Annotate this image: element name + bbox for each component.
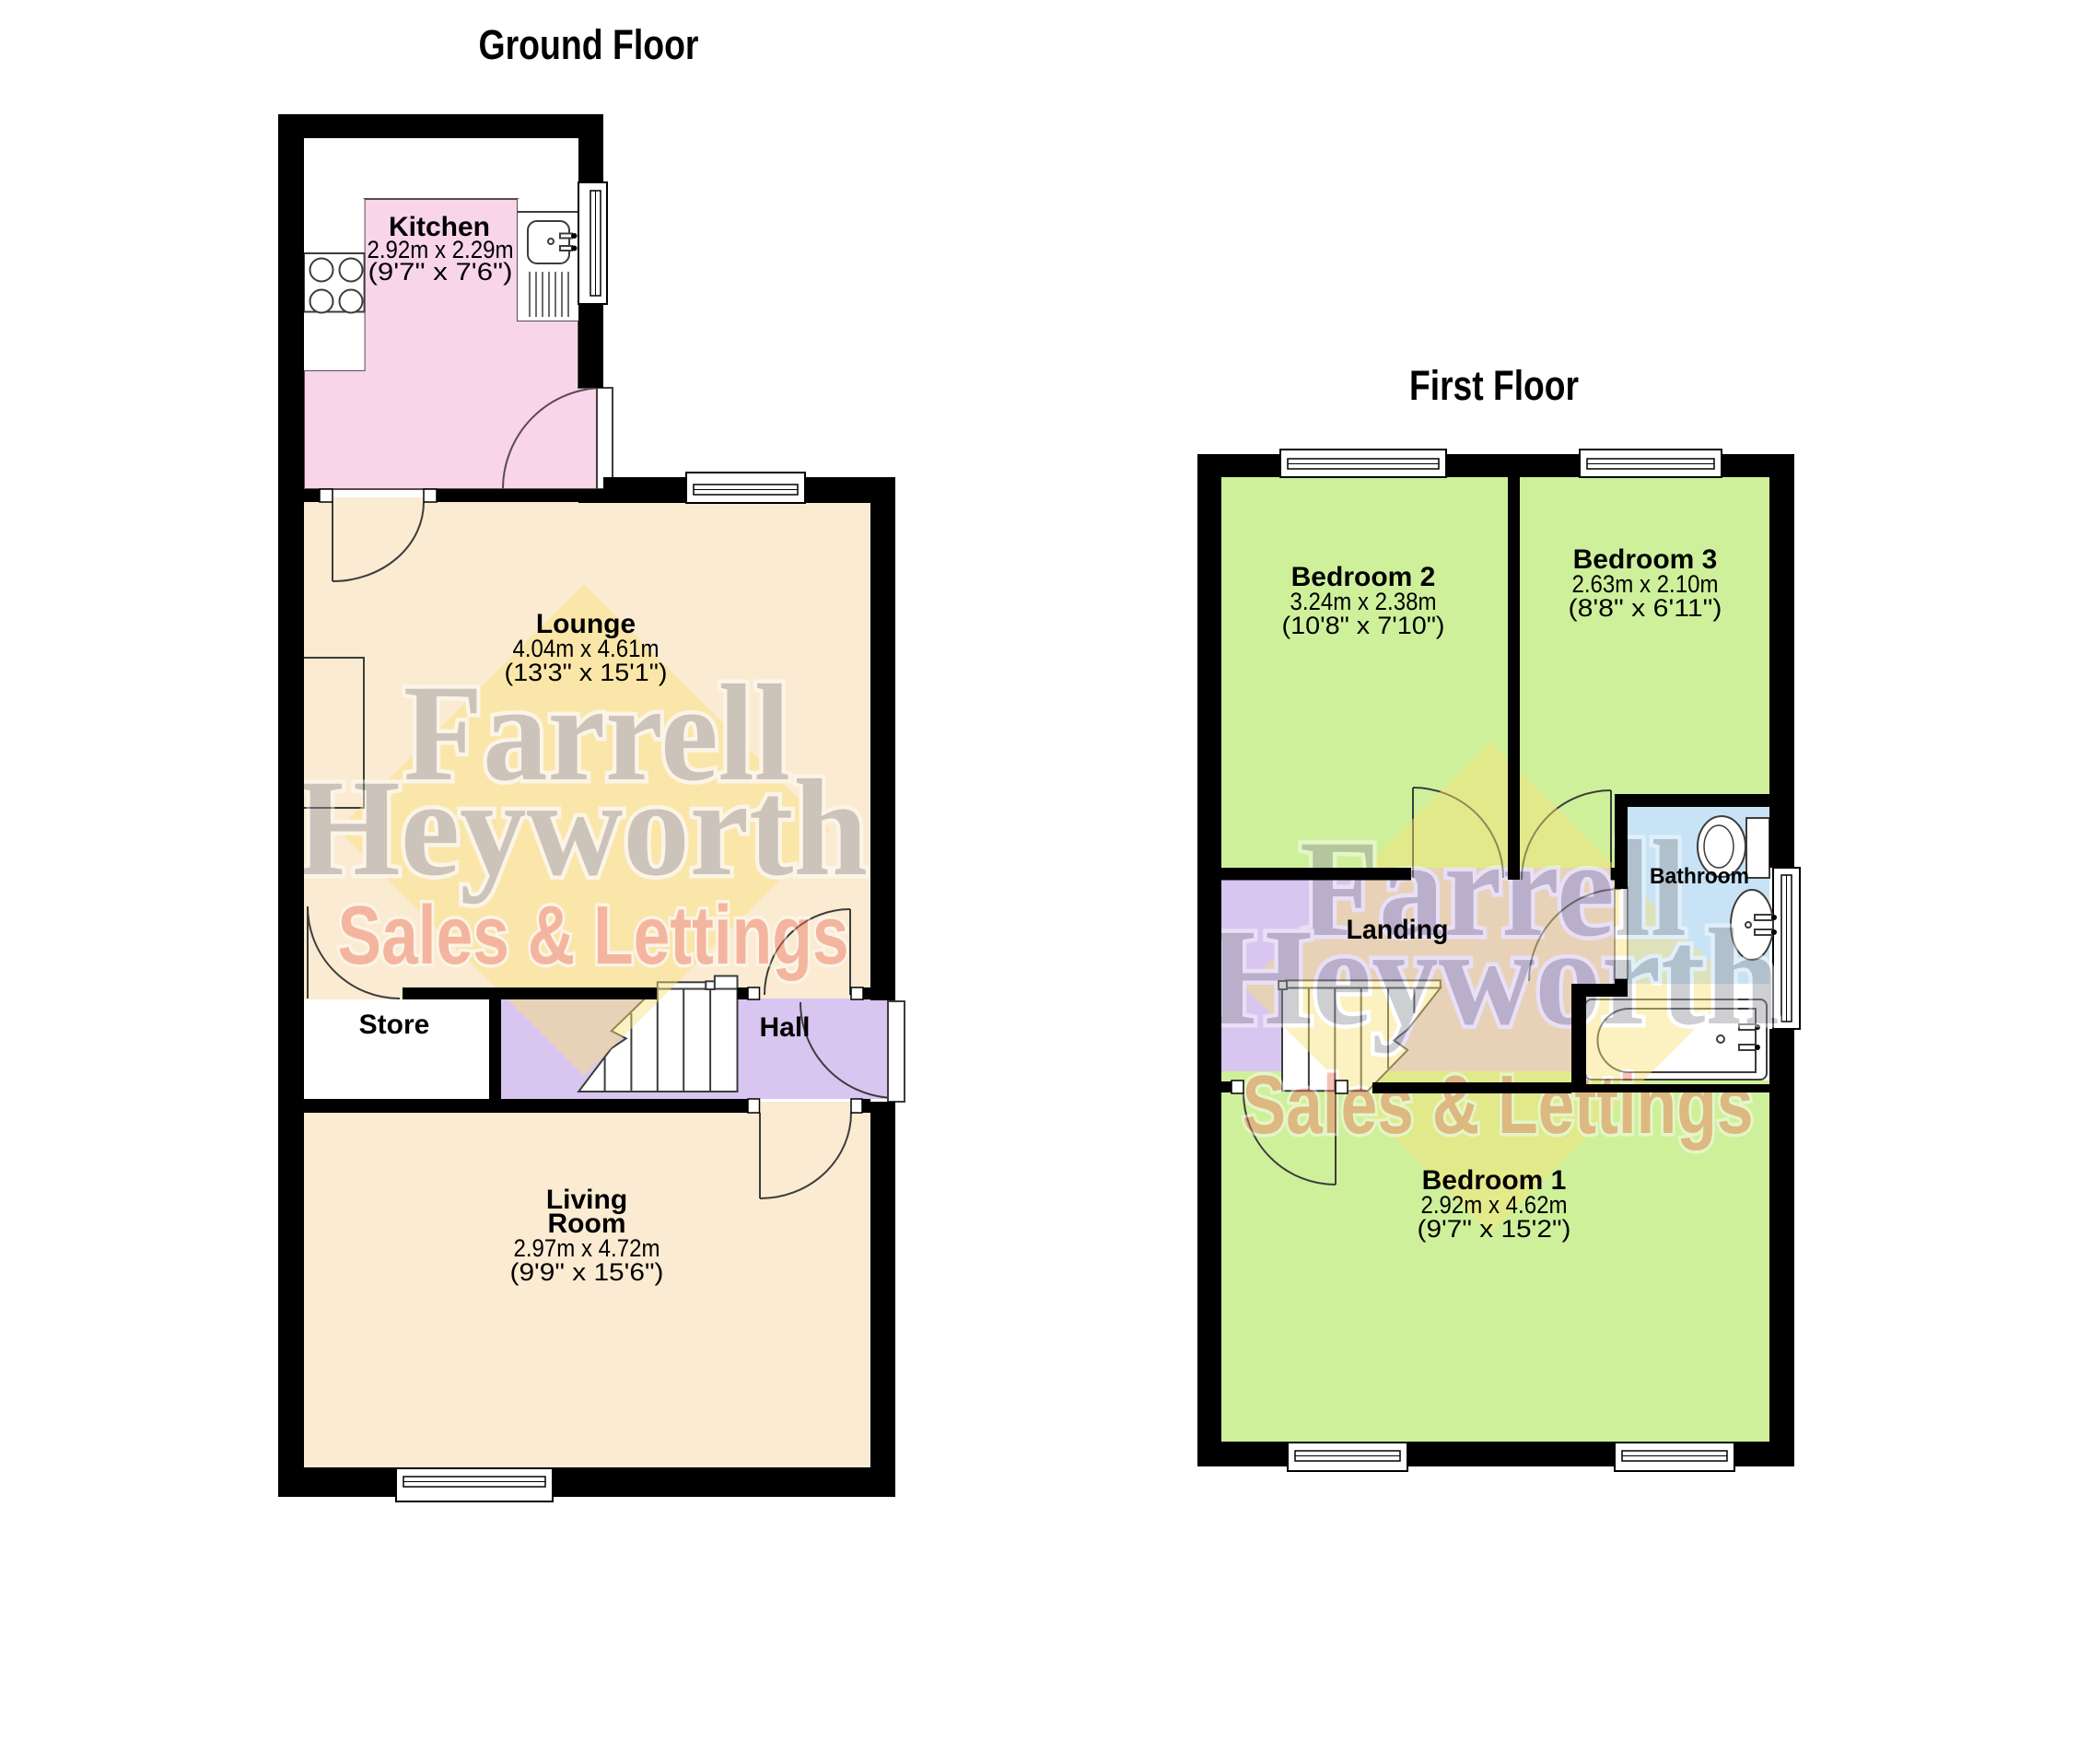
svg-text:Hall: Hall — [759, 1012, 810, 1043]
svg-text:(9'7" x 7'6"): (9'7" x 7'6") — [368, 258, 513, 286]
svg-text:Sales & Lettings: Sales & Lettings — [338, 890, 849, 982]
svg-text:Sales & Lettings: Sales & Lettings — [1243, 1059, 1754, 1151]
svg-text:(10'8" x 7'10"): (10'8" x 7'10") — [1282, 612, 1445, 639]
svg-text:Ground Floor: Ground Floor — [479, 21, 699, 68]
svg-text:Landing: Landing — [1347, 915, 1449, 945]
svg-text:First Floor: First Floor — [1409, 362, 1579, 409]
svg-text:(9'9" x 15'6"): (9'9" x 15'6") — [510, 1258, 664, 1286]
svg-text:Heyworth: Heyworth — [297, 752, 868, 905]
svg-text:(8'8" x 6'11"): (8'8" x 6'11") — [1569, 594, 1722, 622]
svg-text:Store: Store — [359, 1010, 430, 1040]
svg-text:(13'3" x 15'1"): (13'3" x 15'1") — [505, 659, 668, 686]
svg-text:Heyworth: Heyworth — [1208, 901, 1780, 1054]
svg-text:(9'7" x 15'2"): (9'7" x 15'2") — [1418, 1215, 1571, 1243]
svg-text:Bathroom: Bathroom — [1650, 864, 1749, 889]
